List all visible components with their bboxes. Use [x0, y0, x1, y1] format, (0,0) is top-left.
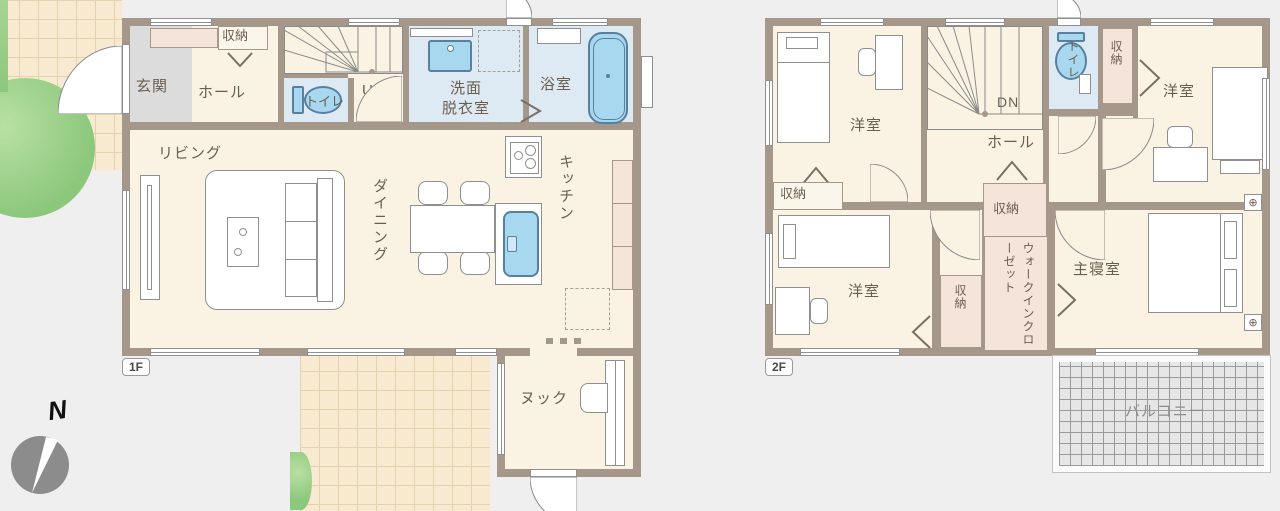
wall: [273, 122, 354, 130]
washroom-label-line2: 脱衣室: [422, 100, 510, 119]
wall: [1105, 202, 1262, 210]
closet-door-chevron: [1057, 282, 1077, 318]
door-arc: [1055, 210, 1105, 260]
floor-tag-1f: 1F: [122, 358, 150, 376]
wall: [908, 202, 930, 210]
window: [497, 363, 505, 455]
dining-table: [410, 205, 495, 253]
window: [150, 18, 212, 26]
window: [800, 348, 900, 356]
bed-pillow: [1224, 269, 1237, 307]
master-bedroom-label: 主寝室: [1073, 261, 1121, 280]
desk: [1153, 147, 1208, 182]
storage-label: 収納: [1108, 40, 1123, 96]
door-arc: [1102, 118, 1154, 170]
bedroom-ne-label: 洋室: [1163, 83, 1195, 102]
storage-label: 収納: [780, 186, 806, 202]
kitchen-counter: [612, 160, 633, 290]
wall: [1043, 26, 1049, 116]
wall: [1086, 109, 1098, 116]
entrance-door-arc: [58, 46, 122, 114]
storage-label: 収納: [222, 28, 248, 44]
window: [945, 18, 1005, 26]
wall: [348, 78, 354, 122]
sliding-partition: [470, 125, 520, 126]
wall: [982, 237, 985, 350]
sofa-seats: [285, 183, 317, 297]
floor-plan-1f: トイレ UP 収納: [122, 18, 641, 477]
living-label: リビング: [158, 145, 222, 164]
exterior-door-arc: [1057, 0, 1081, 18]
closet-door-chevron: [226, 52, 254, 68]
wall: [284, 74, 348, 78]
dining-chair: [418, 181, 448, 205]
bed-line: [777, 62, 830, 63]
storage-label: 収納: [952, 284, 967, 342]
compass-north-label: N: [46, 394, 69, 427]
closet-door-chevron: [1139, 58, 1161, 98]
burner-icon: [514, 151, 523, 160]
washer-space: [478, 30, 520, 72]
storage-label: 収納: [993, 201, 1019, 217]
nook-label: ヌック: [520, 390, 568, 409]
entrance-label: 玄関: [136, 78, 168, 97]
hall-label-2f: ホール: [987, 134, 1035, 153]
washroom-label-line1: 洗面: [422, 80, 510, 99]
sink-faucet-icon: [507, 236, 517, 252]
window: [348, 18, 400, 26]
wall: [523, 26, 529, 96]
wall: [1047, 210, 1055, 278]
walk-in-closet-label: ウォークインクローゼット: [993, 242, 1037, 346]
toilet-label: トイレ: [305, 94, 344, 110]
dining-chair: [460, 181, 490, 205]
wall: [932, 344, 940, 348]
window: [1262, 78, 1270, 170]
equipment-icon: ⊕: [1244, 314, 1262, 331]
nook-counter: [605, 360, 625, 466]
desk: [875, 35, 903, 90]
stairs-1f: [284, 26, 403, 74]
dn-label: DN: [997, 94, 1019, 112]
dining-label: ダイニング: [372, 178, 387, 288]
drain-icon: [606, 74, 610, 78]
door-opening: [1057, 18, 1081, 26]
bath-counter: [537, 28, 581, 44]
closet-door-chevron: [995, 160, 1029, 182]
bath-door-chevron: [520, 98, 542, 124]
door-arc: [356, 76, 402, 122]
bed-line: [1220, 213, 1221, 313]
toilet-cabinet: [1079, 74, 1091, 94]
sofa-cushion-line: [285, 221, 317, 222]
balcony-label: バルコニー: [1125, 403, 1205, 422]
bath-vent: [641, 56, 653, 108]
terrace-sliding-door: [455, 348, 497, 356]
window: [765, 233, 773, 305]
bed-pillow: [786, 37, 818, 49]
washroom-exterior-door-arc: [506, 0, 532, 18]
nook-door-opening: [530, 469, 577, 477]
floor-tag-2f: 2F: [765, 358, 793, 376]
tv-icon: [147, 185, 152, 290]
nook-desk: [580, 383, 608, 413]
dining-chair: [460, 251, 490, 275]
nook-door-arc: [530, 477, 577, 511]
wall: [403, 26, 409, 122]
door-arc: [930, 210, 980, 260]
bed: [1212, 67, 1268, 160]
floorplan-canvas: トイレ UP 収納: [0, 0, 1280, 511]
compass: N: [10, 393, 120, 505]
shoe-cabinet: [150, 28, 218, 48]
wall: [1133, 26, 1138, 118]
toilet-tank-icon: [292, 86, 304, 114]
bedroom-sw-label: 洋室: [848, 283, 880, 302]
chair: [858, 48, 876, 76]
hall-label: ホール: [198, 84, 246, 103]
chair: [810, 298, 828, 324]
coffee-table: [227, 217, 259, 267]
bedroom-nw-label: 洋室: [850, 117, 882, 136]
washroom-cabinet: [410, 28, 473, 37]
desk: [775, 287, 810, 335]
wall: [403, 122, 470, 130]
kitchen-label: キッチン: [558, 154, 573, 254]
door-arc: [1058, 116, 1096, 154]
door-arc: [870, 164, 908, 202]
faucet-icon: [447, 45, 454, 52]
window: [1150, 18, 1214, 26]
wall: [1049, 109, 1058, 116]
bed-footboard: [1220, 160, 1260, 174]
wall: [130, 122, 197, 130]
equipment-icon: ⊕: [1244, 194, 1262, 211]
closet-door-chevron: [911, 314, 931, 350]
sofa-back: [317, 178, 333, 302]
table-dot: [234, 248, 242, 256]
door-opening: [506, 18, 532, 26]
bath-label: 浴室: [540, 76, 572, 95]
window: [552, 18, 608, 26]
bathtub-inner: [593, 38, 625, 120]
window: [150, 348, 260, 356]
half-wall-post: [574, 338, 581, 344]
half-wall-post: [546, 338, 553, 344]
dining-chair: [418, 251, 448, 275]
refrigerator-space: [565, 288, 610, 330]
stairs-2f: [927, 26, 1043, 130]
table-dot: [239, 228, 247, 236]
window: [820, 18, 884, 26]
window: [765, 80, 773, 146]
toilet-label-2f: トイレ: [1065, 40, 1080, 104]
nook-opening: [530, 348, 577, 356]
sofa-cushion-line: [285, 259, 317, 260]
window: [1095, 348, 1199, 356]
hedge-strip: [0, 0, 8, 92]
window: [307, 348, 405, 356]
burner-icon: [525, 158, 536, 169]
burner-icon: [525, 145, 536, 156]
wall: [1047, 322, 1055, 348]
half-wall-post: [560, 338, 567, 344]
floor-plan-2f: DN トイレ 収納 洋室 収納 ホール 収納: [765, 18, 1275, 478]
entrance-door-opening: [122, 44, 130, 114]
chair: [1167, 126, 1193, 148]
window: [122, 190, 130, 290]
counter-divider: [612, 203, 633, 204]
counter-divider: [612, 246, 633, 247]
bed-pillow: [1224, 221, 1237, 259]
bed-pillow: [783, 224, 796, 259]
